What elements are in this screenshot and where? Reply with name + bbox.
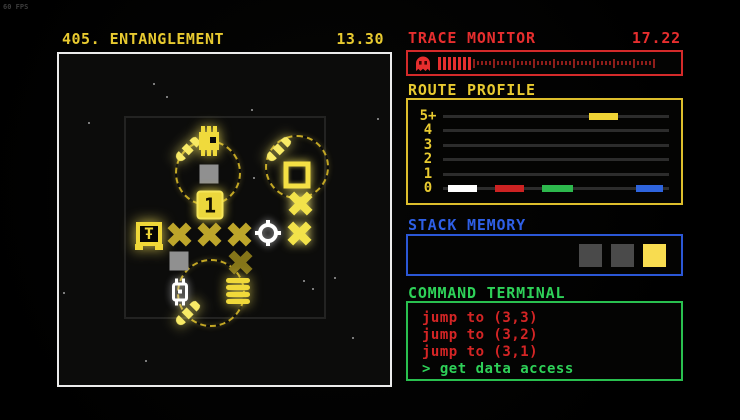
route-gridline xyxy=(443,123,669,137)
trace-bars xyxy=(438,57,674,70)
gray-square[interactable] xyxy=(200,165,219,184)
x-mid[interactable] xyxy=(168,223,191,246)
trace-tick xyxy=(613,59,615,68)
trace-activity-bar xyxy=(438,57,441,70)
route-axis-label: 3 xyxy=(413,138,443,152)
route-gridline xyxy=(443,152,669,166)
trace-activity-bar xyxy=(463,57,466,70)
trace-monitor-value: 17.22 xyxy=(632,31,681,45)
memory-slot xyxy=(579,244,602,267)
star xyxy=(166,96,168,98)
trace-monitor-box xyxy=(406,50,683,76)
trace-tick xyxy=(525,61,527,65)
star xyxy=(88,122,90,124)
route-row: 4 xyxy=(413,123,669,137)
trace-tick xyxy=(561,61,563,65)
route-axis-label: 2 xyxy=(413,152,443,166)
trace-monitor-title: TRACE MONITOR xyxy=(408,31,536,45)
star xyxy=(334,277,336,279)
trace-tick xyxy=(617,61,619,65)
route-axis-label: 4 xyxy=(413,123,443,137)
route-axis-label: 1 xyxy=(413,167,443,181)
trace-tick xyxy=(529,61,531,65)
trace-tick xyxy=(517,61,519,65)
level-timer: 13.30 xyxy=(336,30,384,48)
star xyxy=(303,280,305,282)
route-segment xyxy=(542,185,573,192)
coin-stack[interactable] xyxy=(225,277,251,307)
trace-tick xyxy=(501,61,503,65)
board-header: 405. ENTANGLEMENT 13.30 xyxy=(62,30,384,48)
trace-tick xyxy=(629,61,631,65)
trace-tick xyxy=(577,61,579,65)
trace-activity-bar xyxy=(453,57,456,70)
trace-tick xyxy=(585,61,587,65)
trace-tick xyxy=(497,61,499,65)
route-chart: 5+43210 xyxy=(413,109,669,195)
trace-tick xyxy=(545,61,547,65)
trace-tick xyxy=(533,59,535,68)
stack-memory-box xyxy=(406,234,683,276)
terminal-line-prompt[interactable]: > get data access xyxy=(422,361,681,378)
route-gridline xyxy=(443,109,669,123)
route-profile-box: 5+43210 xyxy=(406,98,683,205)
trace-tick xyxy=(593,59,595,68)
trace-tick xyxy=(549,61,551,65)
trace-tick xyxy=(541,61,543,65)
trace-tick xyxy=(553,59,555,68)
trace-activity-bar xyxy=(448,57,451,70)
trace-tick xyxy=(557,61,559,65)
trace-tick xyxy=(569,61,571,65)
terminal-line-command[interactable]: jump to (3,2) xyxy=(422,327,681,344)
route-row: 1 xyxy=(413,167,669,181)
level-title: 405. ENTANGLEMENT xyxy=(62,30,224,48)
trace-tick xyxy=(645,61,647,65)
route-row: 0 xyxy=(413,181,669,195)
trace-tick xyxy=(633,59,635,68)
trace-tick xyxy=(589,61,591,65)
x-bright[interactable] xyxy=(289,192,312,215)
stack-memory-title: STACK MEMORY xyxy=(408,218,526,232)
trace-tick xyxy=(505,61,507,65)
trace-tick xyxy=(621,61,623,65)
fps-counter: 60 FPS xyxy=(3,3,28,11)
command-terminal-header: COMMAND TERMINAL xyxy=(406,286,683,300)
chip-rook[interactable] xyxy=(198,126,220,156)
trace-tick xyxy=(573,59,575,68)
trace-monitor-header: TRACE MONITOR 17.22 xyxy=(406,31,683,45)
gray-square[interactable] xyxy=(170,252,189,271)
trace-activity-bar xyxy=(458,57,461,70)
route-profile-header: ROUTE PROFILE xyxy=(406,83,683,97)
route-segment xyxy=(495,185,524,192)
terminal-line-command[interactable]: jump to (3,3) xyxy=(422,310,681,327)
route-axis-label: 0 xyxy=(413,181,443,195)
x-mid[interactable] xyxy=(228,223,251,246)
route-row: 2 xyxy=(413,152,669,166)
trace-tick xyxy=(653,59,655,68)
trace-tick xyxy=(625,61,627,65)
trace-tick xyxy=(489,61,491,65)
memory-slot xyxy=(611,244,634,267)
one-chip[interactable]: 1 xyxy=(197,191,224,220)
star xyxy=(253,177,255,179)
game-screen: 60 FPS 405. ENTANGLEMENT 13.30 1Ŧ TRACE … xyxy=(0,0,740,420)
route-profile-title: ROUTE PROFILE xyxy=(408,83,536,97)
trace-tick xyxy=(597,61,599,65)
trace-tick xyxy=(481,61,483,65)
route-gridline xyxy=(443,138,669,152)
target-ring[interactable] xyxy=(255,220,281,246)
trace-tick xyxy=(649,61,651,65)
route-row: 3 xyxy=(413,138,669,152)
trace-activity-bar xyxy=(443,57,446,70)
trace-tick xyxy=(609,61,611,65)
trace-tick xyxy=(509,61,511,65)
trace-tick xyxy=(581,61,583,65)
star xyxy=(145,360,147,362)
route-segment xyxy=(589,113,618,120)
stack-memory-header: STACK MEMORY xyxy=(406,218,683,232)
ghost-icon xyxy=(415,56,431,71)
star xyxy=(63,292,65,294)
route-segment xyxy=(636,185,663,192)
star xyxy=(153,83,155,85)
x-dim[interactable] xyxy=(229,251,252,274)
chip-white[interactable] xyxy=(169,279,191,306)
star xyxy=(377,118,379,120)
game-board[interactable]: 1Ŧ xyxy=(57,52,392,387)
command-terminal-title: COMMAND TERMINAL xyxy=(408,286,565,300)
trace-tick xyxy=(605,61,607,65)
star xyxy=(251,109,253,111)
side-panel: TRACE MONITOR 17.22 ROUTE PROFILE 5+4321… xyxy=(406,31,683,381)
trace-tick xyxy=(477,61,479,65)
star xyxy=(312,288,314,290)
trace-tick xyxy=(537,61,539,65)
terminal-line-command[interactable]: jump to (3,1) xyxy=(422,344,681,361)
x-bright[interactable] xyxy=(288,222,311,245)
trace-tick xyxy=(485,61,487,65)
route-gridline xyxy=(443,181,669,195)
trace-tick xyxy=(601,61,603,65)
trace-tick xyxy=(493,59,495,68)
trace-tick xyxy=(565,61,567,65)
trace-tick xyxy=(521,61,523,65)
trace-tick xyxy=(641,61,643,65)
route-axis-label: 5+ xyxy=(413,109,443,123)
hollow-square[interactable] xyxy=(284,162,311,189)
trace-tick xyxy=(637,61,639,65)
memory-slot xyxy=(643,244,666,267)
x-mid[interactable] xyxy=(198,223,221,246)
route-segment xyxy=(448,185,477,192)
trace-activity-bar xyxy=(468,57,471,70)
route-gridline xyxy=(443,167,669,181)
trace-tick xyxy=(513,59,515,68)
command-terminal-box: jump to (3,3)jump to (3,2)jump to (3,1)>… xyxy=(406,301,683,381)
route-row: 5+ xyxy=(413,109,669,123)
player[interactable]: Ŧ xyxy=(136,222,162,246)
trace-tick xyxy=(473,59,475,68)
star xyxy=(352,337,354,339)
